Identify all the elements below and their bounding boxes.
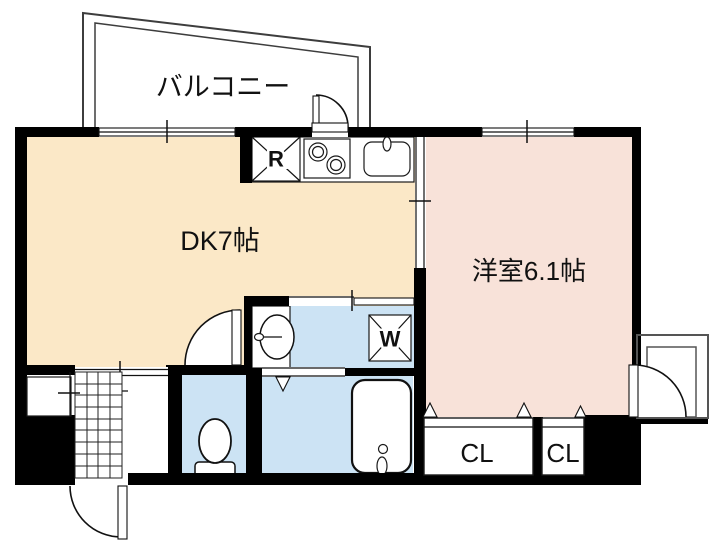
dk-label: DK7帖	[180, 226, 260, 256]
balcony-outer-outline	[83, 13, 370, 128]
porch-door	[629, 365, 686, 417]
wall-segment	[244, 296, 289, 306]
balcony-label: バルコニー	[156, 72, 290, 102]
door-swing-arc	[316, 95, 348, 127]
washing-machine-label: W	[380, 327, 401, 352]
closet-large: CL	[424, 418, 533, 475]
wall-segment	[583, 415, 641, 485]
wall-segment	[15, 127, 99, 137]
wall-segment	[632, 127, 641, 365]
shoe-cabinet-box	[27, 377, 71, 416]
entrance-door	[70, 486, 127, 539]
wall-segment	[574, 127, 641, 137]
wall-segment	[345, 368, 414, 376]
sink-faucet	[383, 137, 391, 151]
floor-plan: バルコニー R W	[0, 0, 728, 544]
door-threshold	[312, 123, 348, 132]
wall-segment	[15, 365, 75, 375]
wall-segment	[244, 306, 252, 368]
wall-segment	[348, 127, 482, 137]
stove-burner-inner	[313, 147, 324, 158]
door-swing-area	[70, 486, 121, 537]
genkan-tiles	[75, 372, 122, 478]
refrigerator-label: R	[268, 147, 284, 172]
stove-burner-inner	[331, 160, 342, 171]
western-room-label: 洋室6.1帖	[472, 256, 586, 286]
wall-segment	[15, 415, 75, 485]
door-leaf	[232, 310, 241, 365]
sliding-panel	[354, 298, 414, 305]
wall-segment	[240, 130, 252, 183]
basin-faucet	[255, 334, 264, 341]
stove	[304, 139, 350, 178]
door-leaf	[313, 96, 319, 127]
bathtub-faucet	[377, 457, 387, 475]
wall-segment	[168, 365, 182, 485]
wall-segment	[246, 368, 262, 485]
bathtub-drain	[379, 445, 388, 454]
closet-small: CL	[542, 418, 584, 475]
kitchen-balcony-door	[312, 95, 348, 137]
door-leaf	[118, 486, 127, 539]
door-swing-area	[634, 365, 686, 417]
toilet-bowl	[199, 419, 231, 463]
shoe-cabinet	[27, 372, 80, 417]
floor-plan-drawing: バルコニー R W	[0, 0, 728, 544]
closet-large-label: CL	[460, 438, 493, 468]
door-leaf	[629, 365, 638, 417]
closet-small-label: CL	[546, 438, 579, 468]
